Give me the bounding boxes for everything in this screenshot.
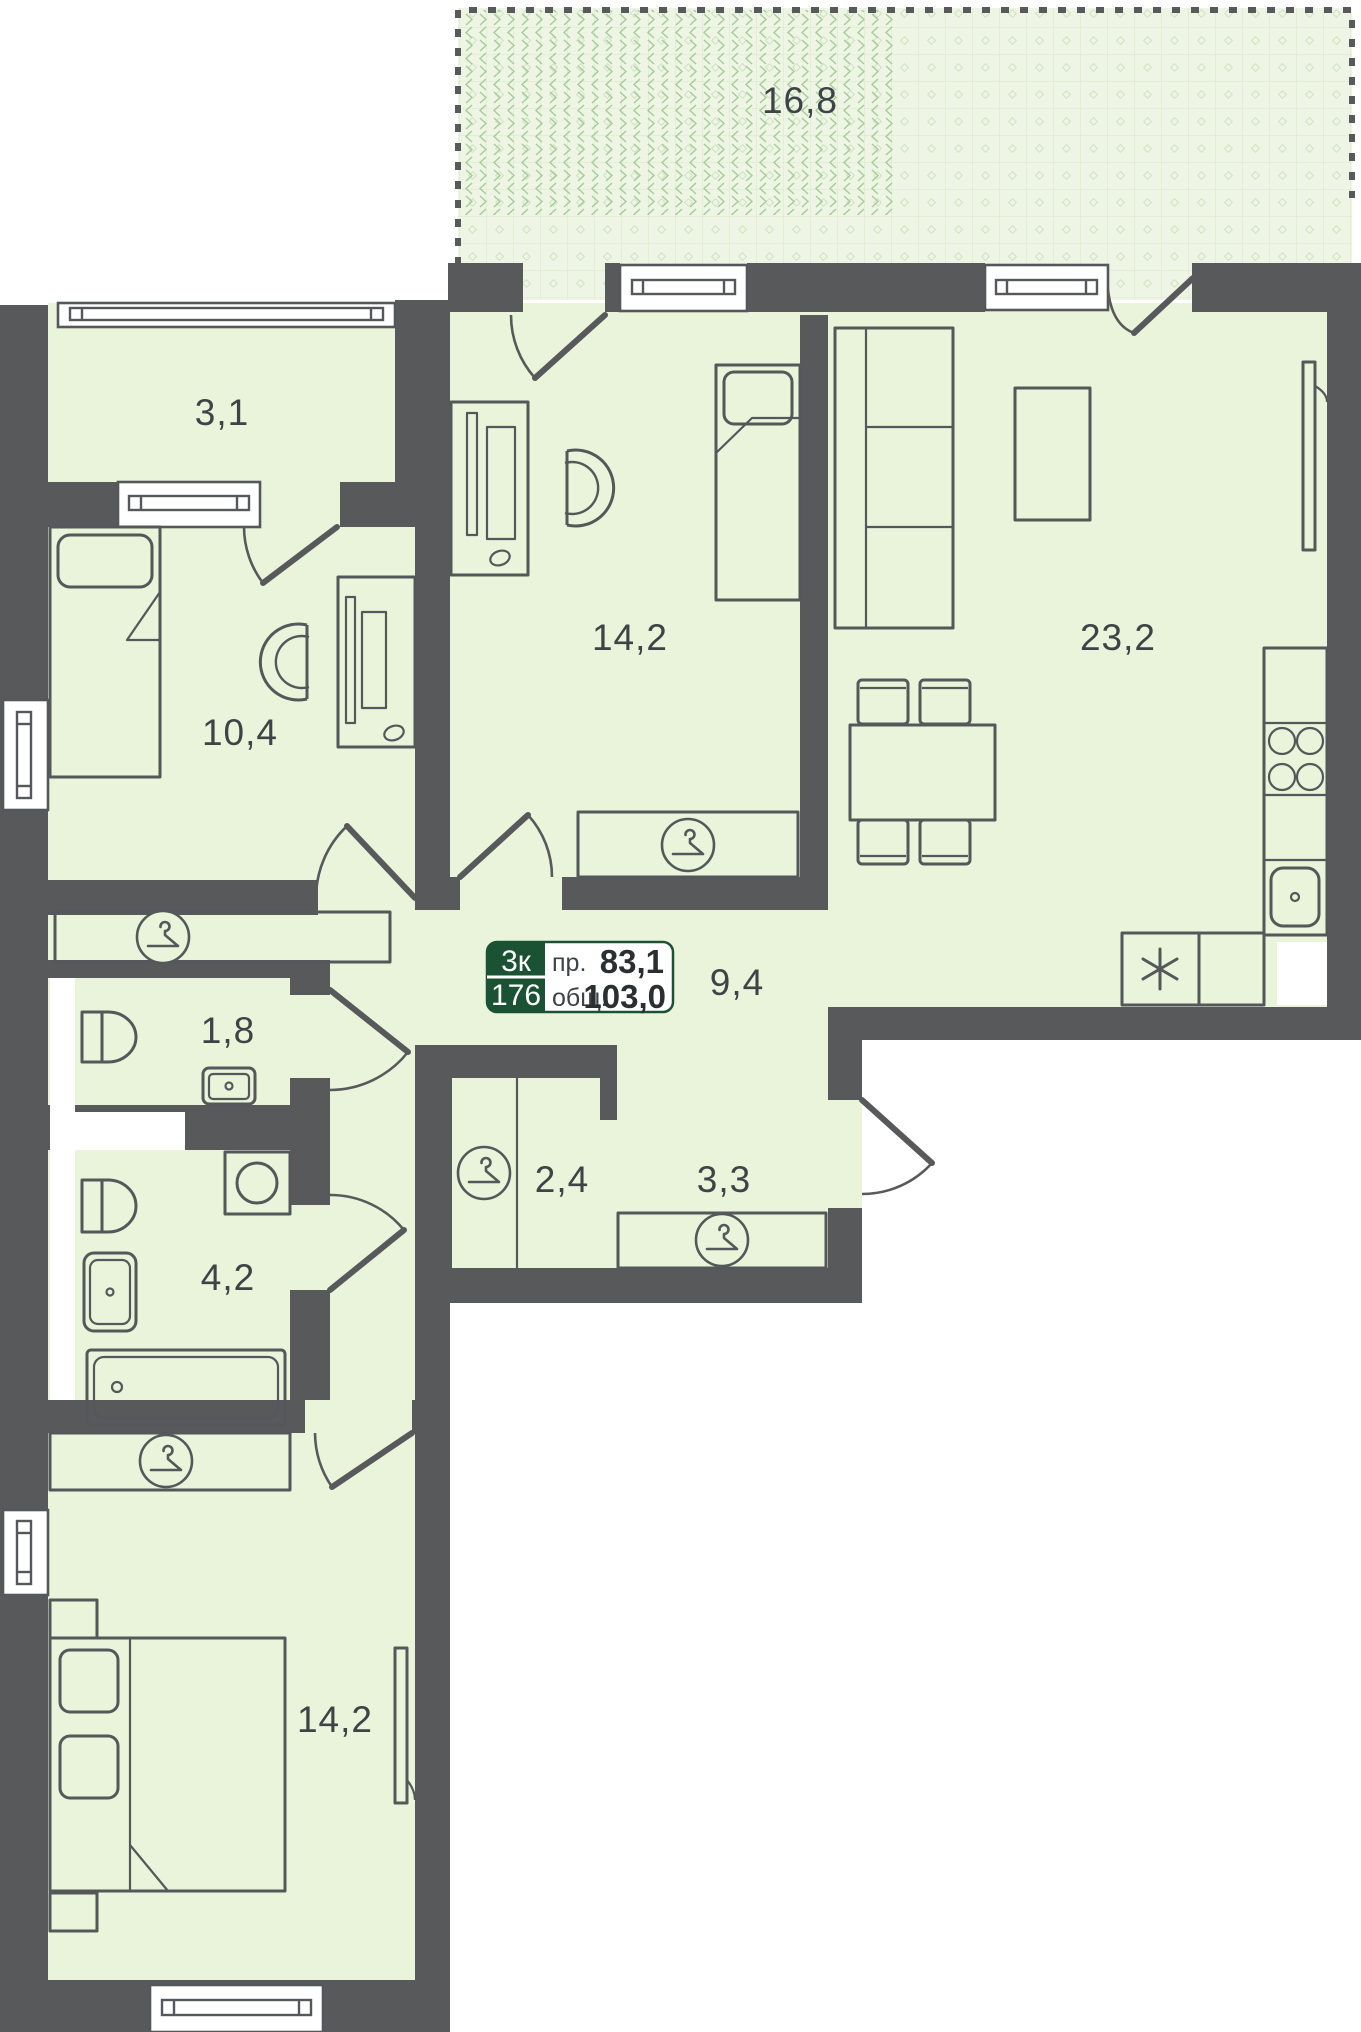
room-label-bedroom-left: 10,4 bbox=[202, 712, 278, 753]
room-label-bedroom-top: 14,2 bbox=[592, 617, 668, 658]
window-bedroom-bottom-left bbox=[3, 1510, 48, 1595]
window-balcony-inner bbox=[118, 482, 260, 527]
hanger-icon-2 bbox=[662, 819, 714, 871]
hanger-icon-4 bbox=[696, 1214, 748, 1266]
vent-shaft bbox=[50, 978, 75, 1400]
room-label-hall: 9,4 bbox=[710, 962, 764, 1003]
kitchen-shaft bbox=[1277, 942, 1327, 1005]
badge-number: 176 bbox=[491, 979, 541, 1012]
floor-plan-page: 16,8 3,1 14,2 23,2 10,4 9,4 1,8 4,2 2,4 … bbox=[0, 0, 1361, 2032]
floor-plan: 16,8 3,1 14,2 23,2 10,4 9,4 1,8 4,2 2,4 … bbox=[0, 0, 1361, 2032]
room-label-balcony: 3,1 bbox=[195, 392, 249, 433]
window-bedroom-top bbox=[620, 265, 747, 311]
window-living bbox=[985, 265, 1108, 310]
room-label-living: 23,2 bbox=[1080, 617, 1156, 658]
hanger-icon bbox=[137, 911, 189, 963]
room-label-closet: 2,4 bbox=[535, 1159, 589, 1200]
badge-living-value: 83,1 bbox=[600, 943, 664, 980]
info-badge: 3к 176 пр. 83,1 общ. 103,0 bbox=[487, 942, 673, 1015]
hanger-icon-5 bbox=[140, 1435, 192, 1487]
hanger-icon-3 bbox=[458, 1147, 510, 1199]
room-label-wc: 1,8 bbox=[201, 1010, 255, 1051]
badge-total-value: 103,0 bbox=[583, 978, 666, 1015]
room-label-terrace: 16,8 bbox=[762, 80, 838, 121]
badge-rooms: 3к bbox=[501, 945, 532, 978]
room-label-bathroom: 4,2 bbox=[201, 1257, 255, 1298]
wall-niche bbox=[60, 1112, 185, 1150]
window-balcony bbox=[58, 303, 395, 327]
entry-door bbox=[862, 1100, 932, 1194]
room-label-entry: 3,3 bbox=[697, 1159, 751, 1200]
badge-living-label: пр. bbox=[552, 949, 586, 977]
window-bedroom-left bbox=[3, 700, 48, 810]
window-bedroom-bottom bbox=[150, 1985, 323, 2032]
terrace bbox=[458, 8, 1352, 303]
room-label-bedroom-bottom: 14,2 bbox=[297, 1699, 373, 1740]
